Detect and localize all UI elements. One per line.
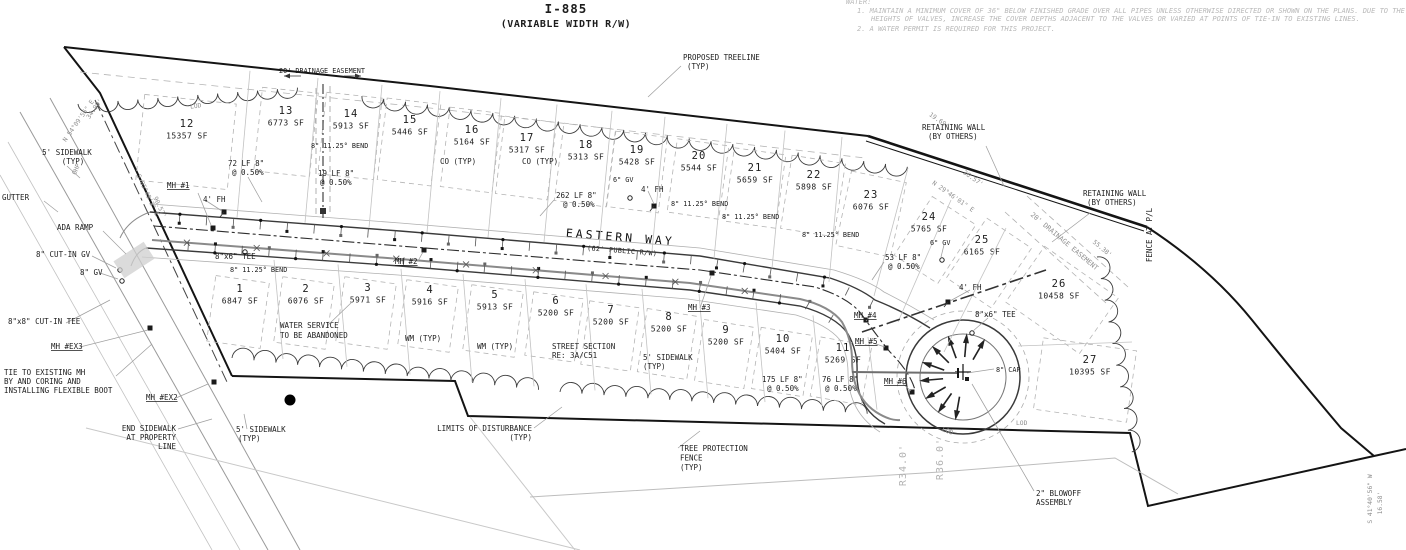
manhole-symbol — [211, 226, 216, 231]
sewer-stub-mh — [320, 208, 326, 214]
water-service-label: WATER SERVICETO BE ABANDONED — [280, 321, 348, 340]
tee-8x6-1-label: 8"x6" TEE — [215, 252, 256, 261]
lot-number: 18 — [579, 139, 594, 151]
sewer-service-dot — [743, 262, 746, 265]
sidewalk-typ-mid-label: 5' SIDEWALK(TYP) — [643, 353, 693, 371]
proposed-treeline-label: PROPOSED TREELINE(TYP) — [683, 53, 760, 71]
water-notes-heading: WATER: — [846, 0, 871, 6]
leader-line — [116, 344, 152, 376]
service-tick — [796, 273, 798, 282]
service-box — [591, 271, 594, 274]
lot-area: 5164 SF — [454, 138, 491, 147]
leader-line — [248, 177, 262, 202]
lot-number: 27 — [1083, 354, 1098, 366]
sewer-main — [154, 226, 915, 390]
lot-number: 22 — [807, 169, 822, 181]
lot-line — [868, 337, 877, 410]
tie-note-label: TIE TO EXISTING MHBY AND CORING ANDINSTA… — [4, 368, 113, 395]
mh-4-label: MH #4 — [854, 311, 877, 320]
lot-number: 16 — [465, 124, 480, 136]
retaining-wall-2-label: RETAINING WALL(BY OTHERS) — [1083, 189, 1147, 207]
service-tick — [368, 229, 369, 238]
bend-3-label: 8" 11.25° BEND — [722, 213, 779, 221]
boundary-layer — [64, 47, 1406, 506]
lot-number: 21 — [748, 162, 763, 174]
lot-number: 7 — [607, 304, 614, 316]
lot-area: 5200 SF — [538, 309, 575, 318]
lot-area: 5544 SF — [681, 164, 718, 173]
service-box — [501, 247, 504, 250]
lot-number: 25 — [975, 234, 990, 246]
service-box — [214, 242, 217, 245]
seg-175-label: 175 LF 8"@ 0.50% — [762, 375, 803, 393]
lot-area: 5765 SF — [911, 225, 948, 234]
service-box — [483, 262, 486, 265]
lot-setback-rect — [781, 155, 846, 237]
service-box — [821, 284, 824, 287]
leader-line — [80, 330, 148, 347]
lot-line — [274, 260, 283, 359]
lot-number: 20 — [692, 150, 707, 162]
lot-number: 15 — [403, 114, 418, 126]
lot-number: 4 — [426, 284, 433, 296]
limits-of-disturbance-label: LIMITS OF DISTURBANCE(TYP) — [437, 424, 532, 442]
lod-3-label: LOD — [190, 102, 202, 111]
lot-number: 2 — [302, 283, 309, 295]
service-box — [393, 238, 396, 241]
fh-1-label: 4' FH — [203, 195, 226, 204]
grading-arrow — [929, 365, 944, 370]
gv-6-2-label: 6" GV — [930, 239, 950, 247]
service-box — [285, 230, 288, 233]
service-tick — [206, 216, 207, 225]
retaining-wall-line-inner — [866, 141, 1144, 231]
blowoff-point — [965, 377, 969, 381]
grading-arrow — [932, 387, 946, 395]
lot-line — [652, 117, 665, 251]
grading-arrow — [942, 393, 951, 406]
lot-number: 8 — [665, 311, 672, 323]
mh-ex3-label: MH #EX3 — [51, 342, 83, 351]
service-box — [715, 266, 718, 269]
site-plan-drawing: I-885 (VARIABLE WIDTH R/W) WATER: 1. MAI… — [0, 0, 1406, 550]
highway-subtitle: (VARIABLE WIDTH R/W) — [501, 19, 631, 30]
sidewalk-typ-left-label: 5' SIDEWALK(TYP) — [42, 148, 92, 166]
lot-area: 5659 SF — [737, 176, 774, 185]
east-fence-line — [1147, 227, 1374, 456]
curb-return — [120, 212, 150, 238]
dim-16-58-label: 16.58' — [1377, 492, 1384, 515]
grading-arrow — [927, 379, 943, 380]
cap-8-label: 8" CAP — [996, 366, 1021, 374]
sewer-service-dot — [778, 301, 781, 304]
lot-line — [813, 315, 822, 406]
service-box — [808, 300, 811, 303]
sewer-service-dot — [294, 257, 297, 260]
mh-1-label: MH #1 — [167, 181, 190, 190]
fence-at-pl-label: FENCE AT P/L — [1145, 207, 1154, 262]
lot-area: 5269 SF — [825, 356, 862, 365]
lot-setback-rect — [440, 107, 501, 193]
lot-number: 24 — [922, 211, 937, 223]
lot-number: 9 — [722, 324, 729, 336]
service-box — [376, 254, 379, 257]
leader-line — [648, 66, 681, 97]
service-box — [339, 234, 342, 237]
sidewalk-typ-bottom-label: 5' SIDEWALK(TYP) — [236, 425, 286, 443]
water-note-1a: 1. MAINTAIN A MINIMUM COVER OF 36" BELOW… — [857, 7, 1406, 15]
lot-area: 5404 SF — [765, 347, 802, 356]
leader-line — [986, 146, 1004, 186]
service-box — [178, 222, 181, 225]
gv-8-label: 8" GV — [80, 268, 103, 277]
sewer-service-dot — [421, 231, 424, 234]
tee-8x6-2-label: 8"x6" TEE — [975, 310, 1016, 319]
mh-5-label: MH #5 — [855, 337, 878, 346]
lot-area: 5913 SF — [477, 303, 514, 312]
lot-line — [586, 284, 595, 390]
lot-number: 13 — [279, 105, 294, 117]
sewer-service-dot — [501, 238, 504, 241]
lot-number: 26 — [1052, 278, 1067, 290]
sewer-service-dot — [536, 276, 539, 279]
bend-2-label: 8" 11.25° BEND — [671, 200, 728, 208]
sewer-service-dot — [375, 263, 378, 266]
lot-line — [427, 91, 440, 232]
leader-line — [92, 256, 116, 268]
sewer-service-dot — [178, 213, 181, 216]
service-tick — [314, 225, 315, 234]
manhole-symbol — [422, 248, 427, 253]
water-main-spur — [852, 372, 958, 373]
lot-line — [525, 279, 534, 386]
lot-area: 6076 SF — [288, 297, 325, 306]
blowoff-label: 2" BLOWOFFASSEMBLY — [1036, 489, 1082, 507]
service-tick — [845, 287, 849, 295]
lot-line — [369, 85, 382, 228]
lot-line — [642, 289, 651, 394]
sewer-service-dot — [663, 251, 666, 254]
lot-area: 5971 SF — [350, 296, 387, 305]
lot-setback-rect — [946, 218, 1031, 308]
bend-5-label: 8" 11.25° BEND — [230, 266, 287, 274]
lot-area: 5313 SF — [568, 153, 605, 162]
fh-3-label: 4' FH — [959, 283, 982, 292]
lot-line — [401, 269, 410, 375]
tree-protection-label: TREE PROTECTIONFENCE(TYP) — [680, 444, 748, 472]
solid-marker-dot — [285, 395, 296, 406]
service-box — [753, 289, 756, 292]
sewer-service-dot — [617, 282, 620, 285]
leader-line — [103, 231, 126, 254]
valve-symbol — [628, 196, 632, 200]
sewer-service-dot — [582, 245, 585, 248]
leader-line — [418, 252, 423, 261]
cut-in-tee-label: 8"x8" CUT-IN TEE — [8, 317, 81, 326]
leader-line — [972, 384, 1034, 491]
grading-arrow — [957, 397, 960, 413]
lot-number: 3 — [364, 282, 371, 294]
lot-area: 10395 SF — [1069, 368, 1111, 377]
grading-arrow — [965, 341, 966, 357]
lod-1-label: LOD — [1016, 420, 1028, 427]
grading-arrowhead — [938, 403, 946, 413]
lot-area: 5428 SF — [619, 158, 656, 167]
retaining-wall-1-label: RETAINING WALL(BY OTHERS) — [922, 123, 986, 141]
street-section-label: STREET SECTIONRE: 3A/C51 — [552, 342, 615, 360]
manhole-symbol — [212, 380, 217, 385]
grading-arrowhead — [925, 391, 935, 399]
service-box — [608, 256, 611, 259]
co-typ-1-label: CO (TYP) — [440, 157, 476, 166]
brg-wall-label: N 29°46'01" E — [931, 179, 976, 214]
service-tick — [475, 237, 476, 246]
leader-line — [872, 262, 884, 280]
service-box — [430, 258, 433, 261]
service-box — [447, 243, 450, 246]
lot-line — [237, 71, 250, 218]
lot-line — [772, 131, 785, 269]
lot-number: 5 — [491, 289, 498, 301]
sewer-service-dot — [698, 290, 701, 293]
gutter-label: GUTTER — [2, 193, 30, 202]
drainage-easement-right-label: 20' DRAINAGE EASEMENT — [1029, 211, 1100, 272]
seg-76-label: 76 LF 8"@ 0.50% — [822, 375, 858, 393]
lot-area: 15357 SF — [166, 132, 208, 141]
lot-area: 5898 SF — [796, 183, 833, 192]
bend-4-label: 8" 11.25° BEND — [802, 231, 859, 239]
lot-line — [463, 274, 472, 382]
gv-6-1-label: 6" GV — [613, 176, 633, 184]
drainage-dashdot — [862, 270, 1046, 332]
lot-area: 5916 SF — [412, 298, 449, 307]
water-note-1b: HEIGHTS OF VALVES, INCREASE THE COVER DE… — [870, 15, 1360, 23]
sewer-service-dot — [259, 219, 262, 222]
lot-area: 6847 SF — [222, 297, 259, 306]
service-box — [645, 276, 648, 279]
highway-title: I-885 — [545, 1, 588, 16]
lot-area: 6076 SF — [853, 203, 890, 212]
mh-3-label: MH #3 — [688, 303, 711, 312]
lot-number: 10 — [776, 333, 791, 345]
lot-area: 6165 SF — [964, 248, 1001, 257]
annotation-layer: PROPOSED TREELINE(TYP)RETAINING WALL(BY … — [2, 53, 1384, 524]
co-typ-2-label: CO (TYP) — [522, 157, 558, 166]
lot-number: 1 — [236, 283, 243, 295]
grading-arrow — [973, 346, 981, 360]
leader-line — [176, 384, 208, 398]
retaining-wall-line — [868, 136, 1147, 227]
service-box — [699, 281, 702, 284]
drainage-easement-top-label: 20' DRAINAGE EASEMENT — [279, 67, 365, 75]
leader-line — [100, 273, 118, 279]
bend-1-label: 8" 11.25° BEND — [311, 142, 368, 150]
lot-number: 17 — [520, 132, 535, 144]
sewer-service-dot — [456, 269, 459, 272]
lot-setback-rect — [1033, 338, 1136, 422]
lot-area: 6773 SF — [268, 119, 305, 128]
lot-line — [338, 264, 347, 366]
lot-layer: 16847 SF26076 SF35971 SF45916 SF55913 SF… — [136, 71, 1137, 422]
valve-symbol — [120, 279, 124, 283]
lot-line — [829, 137, 842, 282]
ada-ramp-label: ADA RAMP — [57, 223, 94, 232]
service-box — [868, 306, 871, 309]
lot-setback-rect — [318, 92, 382, 179]
service-box — [554, 252, 557, 255]
mh-ex2-label: MH #EX2 — [146, 393, 178, 402]
lot-area: 5913 SF — [333, 122, 370, 131]
lot-line — [874, 168, 908, 296]
seg-262-label: 262 LF 8"@ 0.50% — [556, 191, 597, 209]
mh-6-label: MH #6 — [884, 377, 907, 386]
r36-label: R36.0' — [935, 438, 946, 480]
lot-area: 5200 SF — [593, 318, 630, 327]
manhole-symbol — [148, 326, 153, 331]
lot-area: 5200 SF — [708, 338, 745, 347]
r34-label: R34.0' — [898, 444, 909, 486]
dim-55-38-label: 55.38' — [1091, 239, 1113, 259]
lot-area: 10458 SF — [1038, 292, 1080, 301]
leader-line — [967, 369, 994, 373]
lot-line — [544, 104, 557, 242]
service-tick — [691, 255, 692, 264]
leader-line — [44, 201, 58, 212]
lot-number: 12 — [180, 118, 195, 130]
grading-arrow — [938, 352, 949, 363]
manhole-symbol — [710, 271, 715, 276]
grading-arrow — [951, 343, 956, 358]
service-box — [232, 226, 235, 229]
sewer-service-dot — [340, 225, 343, 228]
mh-2-label: MH #2 — [395, 257, 418, 266]
manhole-symbol — [884, 346, 889, 351]
service-box — [662, 260, 665, 263]
lot-number: 14 — [344, 108, 359, 120]
seg-72-label: 72 LF 8"@ 0.50% — [228, 159, 264, 177]
brg-se-label: S 41°40'56" W — [1366, 474, 1374, 523]
existing-sidewalk-line — [0, 175, 212, 550]
fh-2-label: 4' FH — [641, 185, 664, 194]
south-boundary-line — [232, 376, 1406, 506]
grading-arrowhead — [977, 339, 985, 349]
lot-area: 5317 SF — [509, 146, 546, 155]
service-tick — [529, 242, 530, 251]
water-note-2: 2. A WATER PERMIT IS REQUIRED FOR THIS P… — [857, 25, 1055, 33]
seg-53-label: 53 LF 8"@ 0.50% — [885, 253, 921, 271]
lot-number: 19 — [630, 144, 645, 156]
service-box — [768, 275, 771, 278]
valve-symbol — [940, 258, 944, 262]
wm-typ-2-label: WM (TYP) — [477, 342, 513, 351]
lot-number: 6 — [552, 295, 559, 307]
seg-19-label: 19 LF 8"@ 0.50% — [318, 169, 354, 187]
lot-area: 5200 SF — [651, 325, 688, 334]
lot-area: 5446 SF — [392, 128, 429, 137]
sewer-service-dot — [823, 275, 826, 278]
grading-arrowhead — [922, 362, 932, 368]
wm-typ-1-label: WM (TYP) — [405, 334, 441, 343]
site-plan-canvas: I-885 (VARIABLE WIDTH R/W) WATER: 1. MAI… — [0, 0, 1406, 550]
lot-number: 11 — [836, 342, 851, 354]
treeline-scallop — [1097, 257, 1140, 452]
lot-number: 23 — [864, 189, 879, 201]
end-sidewalk-label: END SIDEWALKAT PROPERTYLINE — [122, 424, 177, 451]
cut-in-gv-label: 8" CUT-IN GV — [36, 250, 91, 259]
service-box — [268, 246, 271, 249]
